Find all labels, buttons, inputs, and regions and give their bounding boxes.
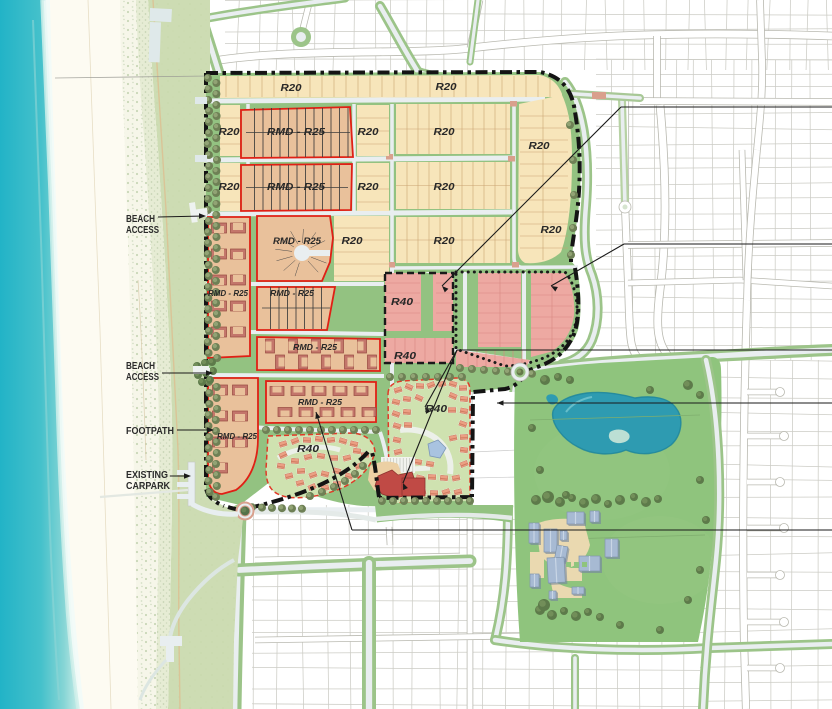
svg-text:R20: R20 (358, 127, 379, 138)
svg-text:R40: R40 (297, 444, 319, 455)
svg-text:RMD - R25: RMD - R25 (298, 397, 342, 407)
svg-text:R20: R20 (358, 182, 379, 193)
svg-text:R20: R20 (219, 127, 240, 138)
svg-text:R20: R20 (434, 182, 455, 193)
svg-text:R40: R40 (391, 297, 413, 308)
svg-text:RMD - R25: RMD - R25 (273, 236, 322, 246)
svg-text:RMD - R25: RMD - R25 (217, 432, 258, 441)
svg-text:RMD - R25: RMD - R25 (270, 288, 314, 298)
svg-text:R20: R20 (281, 83, 302, 94)
svg-text:R40: R40 (425, 404, 447, 415)
svg-text:CARPARK: CARPARK (126, 480, 170, 492)
svg-text:ACCESS: ACCESS (126, 371, 159, 383)
svg-text:FOOTPATH: FOOTPATH (126, 425, 174, 437)
svg-text:RMD - R25: RMD - R25 (208, 289, 249, 298)
svg-text:RMD - R25: RMD - R25 (267, 182, 325, 193)
svg-text:R20: R20 (434, 236, 455, 247)
svg-text:RMD - R25: RMD - R25 (267, 127, 325, 138)
svg-text:R20: R20 (434, 127, 455, 138)
svg-text:R40: R40 (394, 351, 416, 362)
svg-text:RMD - R25: RMD - R25 (293, 342, 337, 352)
svg-text:R20: R20 (436, 82, 457, 93)
svg-text:R20: R20 (529, 141, 550, 152)
svg-text:ACCESS: ACCESS (126, 224, 159, 236)
svg-text:R20: R20 (219, 182, 240, 193)
svg-text:R20: R20 (541, 225, 562, 236)
svg-text:R20: R20 (342, 236, 363, 247)
